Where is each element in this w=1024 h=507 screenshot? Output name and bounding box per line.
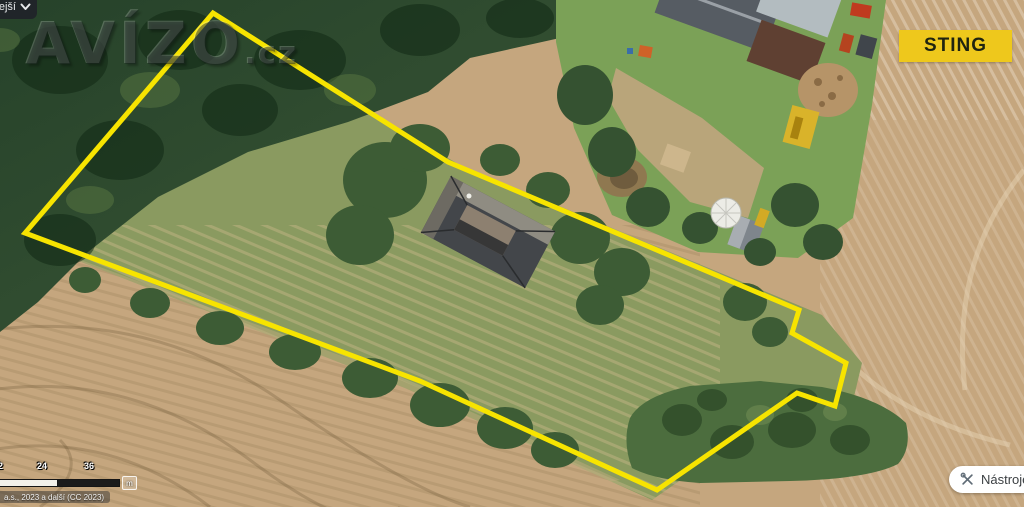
sting-logo-text: STING bbox=[924, 35, 987, 57]
tools-button[interactable]: Nástroje bbox=[949, 466, 1024, 493]
scale-unit-label: m bbox=[126, 479, 133, 488]
scale-label-24: 24 bbox=[37, 461, 47, 471]
scale-labels: 12 24 36 bbox=[0, 461, 160, 473]
tools-icon bbox=[960, 472, 975, 487]
scale-bar-segment-dark bbox=[57, 479, 120, 487]
avizo-watermark: AVÍZO.cz bbox=[26, 10, 299, 78]
scale-unit-badge: m bbox=[122, 476, 137, 490]
map-attribution-text: a.s., 2023 a další (CC 2023) bbox=[4, 493, 104, 502]
avizo-watermark-text: AVÍZO bbox=[26, 10, 245, 78]
scale-label-36: 36 bbox=[84, 461, 94, 471]
pool-dome bbox=[711, 198, 741, 228]
woodpile bbox=[798, 63, 858, 117]
scale-bar-segment-light bbox=[0, 479, 57, 487]
blue-bin bbox=[627, 48, 633, 54]
avizo-watermark-suffix: .cz bbox=[245, 36, 299, 72]
sting-logo-badge: STING bbox=[899, 30, 1012, 62]
chimney bbox=[467, 194, 472, 199]
scale-label-12: 12 bbox=[0, 461, 3, 471]
scale-bar bbox=[0, 479, 120, 487]
orange-tent bbox=[638, 45, 653, 58]
map-screenshot: { "map": { "layer_button": {"label": "ej… bbox=[0, 0, 1024, 507]
map-layer-label: ejší bbox=[0, 1, 16, 13]
tools-button-label: Nástroje bbox=[981, 472, 1024, 487]
map-attribution: a.s., 2023 a další (CC 2023) bbox=[0, 491, 110, 503]
